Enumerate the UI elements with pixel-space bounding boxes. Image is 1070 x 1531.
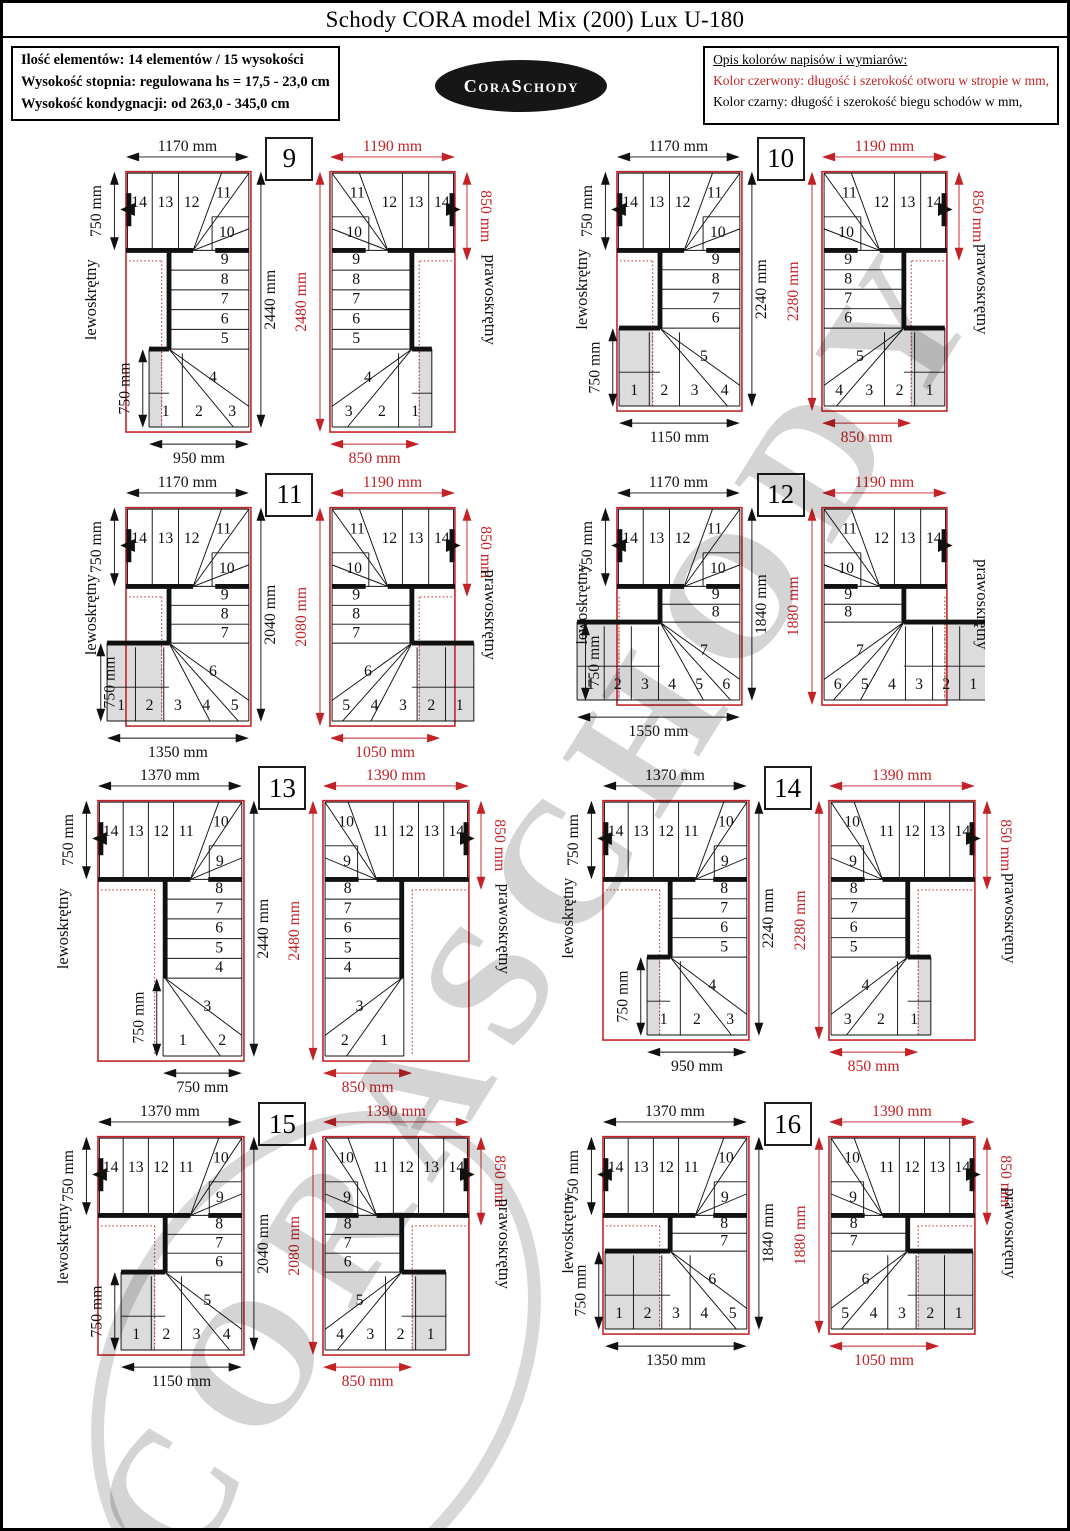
svg-text:7: 7 bbox=[844, 290, 852, 307]
svg-text:5: 5 bbox=[356, 1292, 364, 1309]
svg-text:14: 14 bbox=[449, 823, 465, 840]
svg-text:9: 9 bbox=[721, 853, 729, 870]
svg-text:2: 2 bbox=[397, 1326, 405, 1343]
svg-text:1880 mm: 1880 mm bbox=[785, 576, 802, 636]
svg-text:lewoskrętny: lewoskrętny bbox=[562, 1192, 577, 1274]
svg-text:750 mm: 750 mm bbox=[614, 971, 631, 1023]
svg-text:1: 1 bbox=[925, 382, 933, 399]
svg-text:lewoskrętny: lewoskrętny bbox=[85, 573, 100, 655]
stair-lines bbox=[332, 173, 461, 427]
svg-text:2: 2 bbox=[195, 403, 203, 420]
svg-text:prawoskrętny: prawoskrętny bbox=[1000, 873, 1013, 964]
legend-black-line: Kolor czarny: długość i szerokość biegu … bbox=[713, 92, 1049, 113]
svg-text:14: 14 bbox=[954, 1159, 970, 1176]
panel-row-3: 14131211109876543121370 mm750 mm2440 mm7… bbox=[3, 766, 1067, 1098]
svg-text:9: 9 bbox=[849, 1189, 857, 1206]
svg-text:2: 2 bbox=[614, 675, 622, 692]
panel-row-2: 14131211109876123451170 mm750 mm2040 mm1… bbox=[3, 473, 1067, 763]
svg-text:850 mm: 850 mm bbox=[491, 820, 508, 872]
svg-text:1370 mm: 1370 mm bbox=[645, 768, 705, 785]
legend-box: Opis kolorów napisów i wymiarów: Kolor c… bbox=[703, 46, 1059, 125]
svg-text:6: 6 bbox=[708, 1271, 716, 1288]
svg-text:8: 8 bbox=[720, 880, 728, 897]
svg-text:10: 10 bbox=[339, 814, 355, 831]
svg-text:14: 14 bbox=[434, 194, 450, 211]
panel-number-9: 9 bbox=[265, 137, 313, 181]
svg-text:1190 mm: 1190 mm bbox=[854, 138, 913, 155]
svg-text:8: 8 bbox=[215, 881, 223, 898]
svg-text:8: 8 bbox=[353, 271, 361, 288]
svg-text:13: 13 bbox=[424, 1159, 440, 1176]
svg-text:11: 11 bbox=[683, 823, 698, 840]
svg-text:14: 14 bbox=[449, 1159, 465, 1176]
svg-text:1: 1 bbox=[456, 696, 464, 713]
svg-text:7: 7 bbox=[720, 1233, 728, 1250]
svg-text:4: 4 bbox=[888, 675, 896, 692]
svg-text:14: 14 bbox=[607, 1159, 623, 1176]
legend-title: Opis kolorów napisów i wymiarów: bbox=[713, 50, 1049, 71]
svg-text:12: 12 bbox=[904, 823, 920, 840]
svg-text:950 mm: 950 mm bbox=[173, 450, 225, 467]
panels-grid: 14131211109876541231170 mm750 mm2440 mm9… bbox=[3, 125, 1067, 1392]
svg-text:10: 10 bbox=[213, 1150, 229, 1167]
svg-text:8: 8 bbox=[712, 603, 720, 620]
svg-text:850 mm: 850 mm bbox=[477, 190, 494, 242]
svg-text:4: 4 bbox=[708, 978, 716, 995]
svg-text:12: 12 bbox=[382, 194, 398, 211]
svg-text:11: 11 bbox=[707, 184, 722, 201]
hatch-area bbox=[918, 957, 931, 1035]
svg-text:6: 6 bbox=[364, 663, 372, 680]
svg-text:1370 mm: 1370 mm bbox=[140, 1103, 200, 1120]
svg-text:2: 2 bbox=[643, 1305, 651, 1322]
svg-text:14: 14 bbox=[926, 194, 942, 211]
svg-text:750 mm: 750 mm bbox=[130, 992, 147, 1044]
stair-plan-right-14: 14131211109876541231390 mm2280 mm850 mm8… bbox=[788, 766, 1014, 1077]
svg-text:8: 8 bbox=[849, 1215, 857, 1232]
svg-text:13: 13 bbox=[633, 823, 649, 840]
panel-9: 14131211109876541231170 mm750 mm2440 mm9… bbox=[85, 137, 495, 469]
svg-text:3: 3 bbox=[690, 382, 698, 399]
svg-text:9: 9 bbox=[215, 1189, 223, 1206]
svg-text:1170 mm: 1170 mm bbox=[649, 138, 708, 155]
legend-red-line: Kolor czerwony: długość i szerokość otwo… bbox=[713, 71, 1049, 92]
svg-text:3: 3 bbox=[356, 999, 364, 1016]
svg-text:4: 4 bbox=[721, 382, 729, 399]
svg-text:850 mm: 850 mm bbox=[847, 1058, 899, 1075]
svg-text:12: 12 bbox=[675, 530, 691, 547]
svg-text:10: 10 bbox=[710, 560, 726, 577]
svg-text:8: 8 bbox=[220, 605, 228, 622]
svg-text:prawoskrętny: prawoskrętny bbox=[972, 244, 985, 335]
dimensions: 1390 mm2280 mm850 mm850 mm bbox=[792, 768, 1014, 1076]
panel-number-10: 10 bbox=[757, 137, 805, 181]
svg-text:4: 4 bbox=[869, 1305, 877, 1322]
svg-text:2480 mm: 2480 mm bbox=[286, 901, 303, 961]
svg-text:9: 9 bbox=[844, 585, 852, 602]
svg-text:12: 12 bbox=[183, 194, 199, 211]
svg-text:4: 4 bbox=[364, 369, 372, 386]
svg-text:10: 10 bbox=[218, 560, 234, 577]
svg-text:4: 4 bbox=[700, 1305, 708, 1322]
svg-text:9: 9 bbox=[844, 251, 852, 268]
svg-text:4: 4 bbox=[344, 960, 352, 977]
svg-text:13: 13 bbox=[899, 194, 915, 211]
svg-text:3: 3 bbox=[203, 999, 211, 1016]
svg-text:12: 12 bbox=[398, 823, 414, 840]
svg-text:1390 mm: 1390 mm bbox=[872, 1103, 932, 1120]
svg-text:1880 mm: 1880 mm bbox=[792, 1206, 809, 1266]
svg-text:5: 5 bbox=[230, 696, 238, 713]
svg-text:4: 4 bbox=[215, 960, 223, 977]
panel-number-13: 13 bbox=[258, 766, 306, 810]
svg-text:2: 2 bbox=[926, 1305, 934, 1322]
svg-text:1050 mm: 1050 mm bbox=[356, 744, 416, 761]
svg-text:2: 2 bbox=[942, 675, 950, 692]
page-header: Schody CORA model Mix (200) Lux U-180 bbox=[3, 3, 1067, 38]
svg-text:14: 14 bbox=[926, 530, 942, 547]
svg-text:3: 3 bbox=[641, 675, 649, 692]
svg-text:11: 11 bbox=[178, 823, 193, 840]
svg-text:prawoskrętny: prawoskrętny bbox=[495, 884, 508, 975]
svg-text:850 mm: 850 mm bbox=[342, 1079, 394, 1096]
panel-number-16: 16 bbox=[764, 1102, 812, 1146]
svg-text:6: 6 bbox=[722, 675, 730, 692]
svg-text:2480 mm: 2480 mm bbox=[293, 272, 310, 332]
svg-text:2: 2 bbox=[895, 382, 903, 399]
svg-text:1840 mm: 1840 mm bbox=[760, 1203, 777, 1263]
top-row: Ilość elementów: 14 elementów / 15 wysok… bbox=[3, 38, 1067, 125]
svg-text:1390 mm: 1390 mm bbox=[366, 768, 426, 785]
svg-text:8: 8 bbox=[844, 603, 852, 620]
svg-text:7: 7 bbox=[849, 1233, 857, 1250]
svg-text:5: 5 bbox=[856, 348, 864, 365]
svg-text:1: 1 bbox=[161, 403, 169, 420]
stair-plan-right-12: 14131211109871234561190 mm1880 mmprawosk… bbox=[781, 473, 986, 742]
svg-text:2440 mm: 2440 mm bbox=[254, 899, 271, 959]
svg-text:4: 4 bbox=[222, 1326, 230, 1343]
svg-text:8: 8 bbox=[849, 880, 857, 897]
svg-text:7: 7 bbox=[849, 900, 857, 917]
svg-text:14: 14 bbox=[607, 823, 623, 840]
svg-text:1350 mm: 1350 mm bbox=[148, 744, 208, 761]
svg-text:lewoskrętny: lewoskrętny bbox=[576, 563, 591, 645]
stair-plan-right-10: 14131211109876512341190 mm2280 mm850 mm8… bbox=[781, 137, 986, 448]
svg-text:5: 5 bbox=[700, 348, 708, 365]
svg-text:12: 12 bbox=[873, 194, 889, 211]
svg-text:1370 mm: 1370 mm bbox=[645, 1103, 705, 1120]
svg-text:6: 6 bbox=[712, 309, 720, 326]
info-line-step-height: Wysokość stopnia: regulowana hs = 17,5 -… bbox=[21, 72, 330, 94]
svg-text:2: 2 bbox=[341, 1032, 349, 1049]
svg-text:11: 11 bbox=[879, 1159, 894, 1176]
svg-text:1170 mm: 1170 mm bbox=[157, 474, 216, 491]
svg-text:6: 6 bbox=[844, 309, 852, 326]
svg-text:4: 4 bbox=[209, 369, 217, 386]
svg-text:6: 6 bbox=[720, 919, 728, 936]
stair-plan-left-12: 14131211109871234561170 mm750 mm1840 mm1… bbox=[576, 473, 781, 742]
svg-text:10: 10 bbox=[213, 814, 229, 831]
svg-text:1350 mm: 1350 mm bbox=[646, 1352, 706, 1369]
svg-text:750 mm: 750 mm bbox=[176, 1079, 228, 1096]
stair-plan-left-9: 14131211109876541231170 mm750 mm2440 mm9… bbox=[85, 137, 290, 469]
svg-text:13: 13 bbox=[899, 530, 915, 547]
svg-text:9: 9 bbox=[353, 586, 361, 603]
svg-text:950 mm: 950 mm bbox=[671, 1058, 723, 1075]
svg-text:6: 6 bbox=[215, 920, 223, 937]
svg-text:prawoskrętny: prawoskrętny bbox=[495, 1199, 508, 1290]
svg-text:1: 1 bbox=[427, 1326, 435, 1343]
svg-text:2240 mm: 2240 mm bbox=[753, 259, 770, 319]
svg-text:9: 9 bbox=[220, 251, 228, 268]
svg-text:7: 7 bbox=[344, 900, 352, 917]
logo: CoraSchody bbox=[340, 46, 703, 112]
svg-text:12: 12 bbox=[658, 1159, 674, 1176]
svg-text:1050 mm: 1050 mm bbox=[854, 1352, 914, 1369]
panel-11: 14131211109876123451170 mm750 mm2040 mm1… bbox=[85, 473, 495, 763]
svg-text:3: 3 bbox=[843, 1011, 851, 1028]
panel-15: 14131211109876512341370 mm750 mm2040 mm1… bbox=[57, 1102, 509, 1392]
svg-text:12: 12 bbox=[873, 530, 889, 547]
panel-number-12: 12 bbox=[757, 473, 805, 517]
svg-text:12: 12 bbox=[153, 1159, 169, 1176]
panel-number-14: 14 bbox=[764, 766, 812, 810]
svg-text:9: 9 bbox=[712, 251, 720, 268]
svg-text:1: 1 bbox=[381, 1032, 389, 1049]
svg-text:1190 mm: 1190 mm bbox=[363, 474, 422, 491]
svg-text:5: 5 bbox=[720, 939, 728, 956]
logo-ellipse-icon: CoraSchody bbox=[435, 60, 607, 112]
svg-text:14: 14 bbox=[954, 823, 970, 840]
panel-row-1: 14131211109876541231170 mm750 mm2440 mm9… bbox=[3, 137, 1067, 469]
svg-text:3: 3 bbox=[399, 696, 407, 713]
svg-text:1150 mm: 1150 mm bbox=[650, 429, 709, 446]
svg-text:10: 10 bbox=[347, 224, 363, 241]
svg-text:2080 mm: 2080 mm bbox=[286, 1216, 303, 1276]
svg-text:10: 10 bbox=[838, 224, 854, 241]
svg-text:1190 mm: 1190 mm bbox=[854, 474, 913, 491]
svg-text:2280 mm: 2280 mm bbox=[792, 891, 809, 951]
svg-text:6: 6 bbox=[215, 1254, 223, 1271]
svg-text:1: 1 bbox=[969, 675, 977, 692]
svg-text:5: 5 bbox=[203, 1292, 211, 1309]
svg-text:6: 6 bbox=[849, 919, 857, 936]
stair-plan-right-16: 14131211109876123451390 mm1880 mm850 mm1… bbox=[788, 1102, 1014, 1371]
svg-text:14: 14 bbox=[622, 530, 638, 547]
dimensions: 1390 mm2480 mm850 mm850 mm bbox=[286, 768, 508, 1097]
panel-12: 14131211109871234561170 mm750 mm1840 mm1… bbox=[576, 473, 986, 742]
svg-text:2440 mm: 2440 mm bbox=[261, 270, 278, 330]
svg-text:10: 10 bbox=[844, 1150, 860, 1167]
svg-text:12: 12 bbox=[904, 1159, 920, 1176]
svg-text:7: 7 bbox=[220, 624, 228, 641]
svg-text:2280 mm: 2280 mm bbox=[785, 261, 802, 321]
svg-text:5: 5 bbox=[220, 330, 228, 347]
hatch-area bbox=[420, 349, 433, 427]
svg-text:4: 4 bbox=[835, 382, 843, 399]
svg-text:13: 13 bbox=[128, 823, 144, 840]
svg-text:7: 7 bbox=[712, 290, 720, 307]
svg-text:1: 1 bbox=[910, 1011, 918, 1028]
svg-text:5: 5 bbox=[353, 330, 361, 347]
svg-text:2: 2 bbox=[218, 1032, 226, 1049]
svg-text:1550 mm: 1550 mm bbox=[628, 723, 688, 740]
svg-text:4: 4 bbox=[202, 696, 210, 713]
svg-text:750 mm: 750 mm bbox=[87, 521, 104, 573]
page: CORASCHODY Schody CORA model Mix (200) L… bbox=[0, 0, 1070, 1531]
svg-text:11: 11 bbox=[374, 823, 389, 840]
hatch-area bbox=[149, 349, 162, 427]
svg-text:5: 5 bbox=[343, 696, 351, 713]
svg-text:14: 14 bbox=[622, 194, 638, 211]
svg-text:13: 13 bbox=[929, 823, 945, 840]
stair-plan-left-15: 14131211109876512341370 mm750 mm2040 mm1… bbox=[57, 1102, 283, 1392]
stair-plan-right-9: 14131211109876541231190 mm2480 mm850 mm8… bbox=[289, 137, 494, 469]
svg-text:1: 1 bbox=[412, 403, 420, 420]
panel-row-4: 14131211109876512341370 mm750 mm2040 mm1… bbox=[3, 1102, 1067, 1392]
svg-text:850 mm: 850 mm bbox=[840, 429, 892, 446]
svg-text:4: 4 bbox=[371, 696, 379, 713]
svg-text:13: 13 bbox=[408, 194, 424, 211]
svg-text:3: 3 bbox=[228, 403, 236, 420]
svg-text:lewoskrętny: lewoskrętny bbox=[85, 258, 100, 340]
svg-text:9: 9 bbox=[712, 585, 720, 602]
svg-text:5: 5 bbox=[860, 675, 868, 692]
svg-text:1150 mm: 1150 mm bbox=[151, 1373, 210, 1390]
svg-text:2: 2 bbox=[378, 403, 386, 420]
svg-text:3: 3 bbox=[345, 403, 353, 420]
svg-text:5: 5 bbox=[215, 940, 223, 957]
step-numbers: 1413121110987654123 bbox=[345, 184, 450, 419]
page-title: Schody CORA model Mix (200) Lux U-180 bbox=[326, 7, 745, 32]
svg-text:4: 4 bbox=[668, 675, 676, 692]
svg-text:1: 1 bbox=[630, 382, 638, 399]
panel-16: 14131211109876123451370 mm750 mm1840 mm1… bbox=[562, 1102, 1014, 1371]
svg-text:9: 9 bbox=[344, 853, 352, 870]
dimensions: 1190 mm2480 mm850 mm850 mm bbox=[293, 138, 494, 467]
svg-text:8: 8 bbox=[720, 1215, 728, 1232]
svg-text:7: 7 bbox=[353, 290, 361, 307]
svg-text:1170 mm: 1170 mm bbox=[649, 474, 708, 491]
svg-text:13: 13 bbox=[929, 1159, 945, 1176]
svg-text:1170 mm: 1170 mm bbox=[157, 138, 216, 155]
svg-text:14: 14 bbox=[434, 530, 450, 547]
svg-text:11: 11 bbox=[683, 1159, 698, 1176]
svg-text:10: 10 bbox=[844, 814, 860, 831]
svg-text:prawoskrętny: prawoskrętny bbox=[481, 254, 494, 345]
svg-text:7: 7 bbox=[344, 1235, 352, 1252]
svg-text:750 mm: 750 mm bbox=[579, 185, 596, 237]
svg-text:1390 mm: 1390 mm bbox=[872, 768, 932, 785]
svg-text:1: 1 bbox=[132, 1326, 140, 1343]
svg-text:8: 8 bbox=[344, 881, 352, 898]
svg-text:2: 2 bbox=[162, 1326, 170, 1343]
svg-text:3: 3 bbox=[726, 1011, 734, 1028]
dimensions: 1190 mm2280 mm850 mm850 mm bbox=[785, 138, 986, 446]
svg-text:prawoskrętny: prawoskrętny bbox=[1000, 1188, 1013, 1279]
stair-plan-left-14: 14131211109876541231370 mm750 mm2240 mm9… bbox=[562, 766, 788, 1077]
svg-text:3: 3 bbox=[672, 1305, 680, 1322]
svg-text:9: 9 bbox=[721, 1189, 729, 1206]
svg-text:11: 11 bbox=[374, 1159, 389, 1176]
svg-text:1: 1 bbox=[117, 696, 125, 713]
svg-text:14: 14 bbox=[102, 823, 118, 840]
svg-text:2040 mm: 2040 mm bbox=[261, 584, 278, 644]
svg-text:9: 9 bbox=[215, 853, 223, 870]
svg-text:5: 5 bbox=[695, 675, 703, 692]
svg-text:6: 6 bbox=[353, 310, 361, 327]
stair-plan-right-15: 14131211109876512341390 mm2080 mm850 mm8… bbox=[282, 1102, 508, 1392]
svg-text:4: 4 bbox=[861, 978, 869, 995]
svg-text:12: 12 bbox=[183, 530, 199, 547]
svg-text:750 mm: 750 mm bbox=[88, 1286, 105, 1338]
svg-text:3: 3 bbox=[915, 675, 923, 692]
svg-text:11: 11 bbox=[178, 1159, 193, 1176]
svg-text:9: 9 bbox=[344, 1189, 352, 1206]
svg-text:14: 14 bbox=[131, 194, 147, 211]
info-line-storey-height: Wysokość kondygnacji: od 263,0 - 345,0 c… bbox=[21, 94, 330, 116]
svg-text:2: 2 bbox=[145, 696, 153, 713]
svg-text:7: 7 bbox=[856, 642, 864, 659]
svg-text:lewoskrętny: lewoskrętny bbox=[57, 1203, 72, 1285]
svg-text:850 mm: 850 mm bbox=[342, 1373, 394, 1390]
dimensions: 1390 mm2080 mm850 mm850 mm bbox=[286, 1103, 508, 1390]
svg-text:11: 11 bbox=[350, 184, 365, 201]
svg-text:prawoskrętny: prawoskrętny bbox=[481, 569, 494, 660]
svg-text:850 mm: 850 mm bbox=[969, 190, 986, 242]
svg-text:1: 1 bbox=[178, 1032, 186, 1049]
panel-14: 14131211109876541231370 mm750 mm2240 mm9… bbox=[562, 766, 1014, 1077]
svg-text:2: 2 bbox=[660, 382, 668, 399]
svg-text:6: 6 bbox=[220, 310, 228, 327]
svg-text:750 mm: 750 mm bbox=[586, 341, 603, 393]
svg-text:13: 13 bbox=[128, 1159, 144, 1176]
svg-text:13: 13 bbox=[648, 530, 664, 547]
svg-text:10: 10 bbox=[218, 224, 234, 241]
svg-text:14: 14 bbox=[102, 1159, 118, 1176]
svg-text:5: 5 bbox=[344, 940, 352, 957]
svg-text:6: 6 bbox=[209, 663, 217, 680]
svg-text:10: 10 bbox=[710, 224, 726, 241]
svg-text:2080 mm: 2080 mm bbox=[293, 586, 310, 646]
svg-text:11: 11 bbox=[841, 184, 856, 201]
svg-text:5: 5 bbox=[728, 1305, 736, 1322]
svg-text:11: 11 bbox=[841, 520, 856, 537]
svg-text:13: 13 bbox=[424, 823, 440, 840]
svg-text:7: 7 bbox=[700, 642, 708, 659]
svg-text:13: 13 bbox=[648, 194, 664, 211]
hatch-area bbox=[647, 957, 660, 1035]
svg-text:3: 3 bbox=[174, 696, 182, 713]
svg-text:8: 8 bbox=[844, 270, 852, 287]
svg-text:12: 12 bbox=[658, 823, 674, 840]
svg-text:5: 5 bbox=[841, 1305, 849, 1322]
svg-text:7: 7 bbox=[215, 900, 223, 917]
svg-text:13: 13 bbox=[157, 194, 173, 211]
logo-text: CoraSchody bbox=[464, 76, 579, 97]
svg-text:8: 8 bbox=[353, 605, 361, 622]
panel-number-11: 11 bbox=[265, 473, 313, 517]
svg-text:1: 1 bbox=[615, 1305, 623, 1322]
svg-text:12: 12 bbox=[675, 194, 691, 211]
panel-10: 14131211109876512341170 mm750 mm2240 mm1… bbox=[576, 137, 986, 448]
svg-text:13: 13 bbox=[157, 530, 173, 547]
svg-text:10: 10 bbox=[347, 560, 363, 577]
svg-text:7: 7 bbox=[353, 624, 361, 641]
svg-text:13: 13 bbox=[408, 530, 424, 547]
svg-text:2: 2 bbox=[693, 1011, 701, 1028]
svg-text:9: 9 bbox=[353, 251, 361, 268]
